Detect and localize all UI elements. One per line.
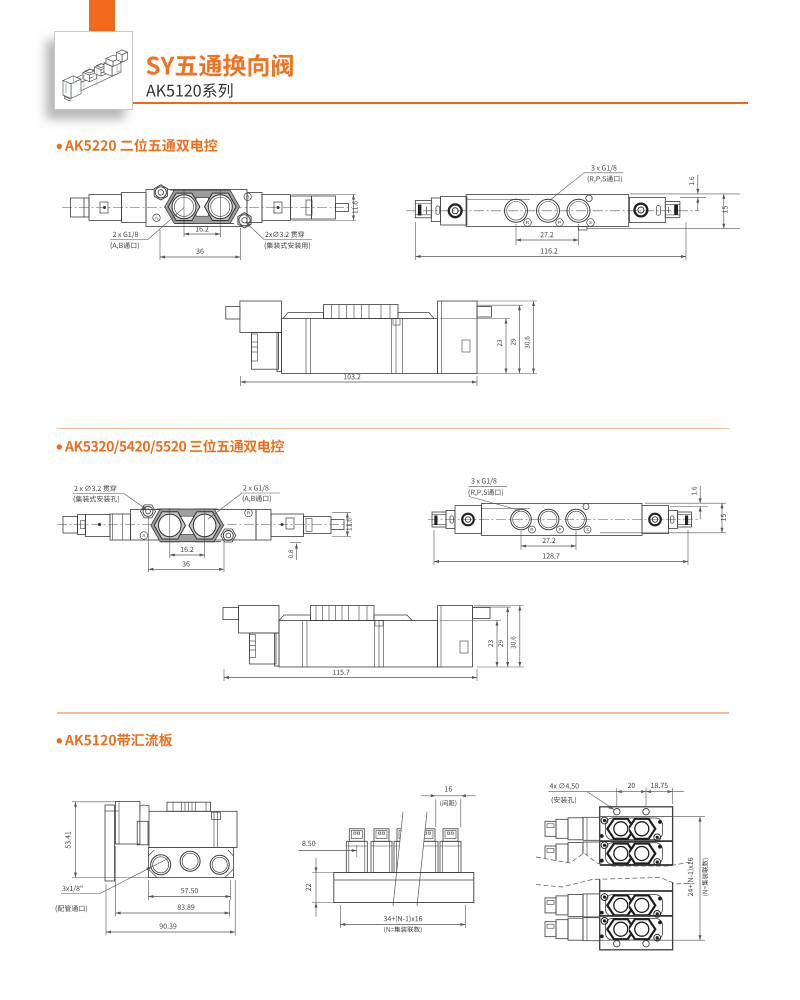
svg-text:S: S	[586, 527, 589, 532]
svg-text:R: R	[530, 527, 534, 532]
svg-text:R: R	[247, 511, 251, 517]
svg-text:P: P	[558, 527, 561, 532]
svg-text:A: A	[142, 533, 146, 539]
svg-text:A: A	[155, 215, 159, 220]
svg-text:P: P	[558, 220, 561, 226]
svg-text:R: R	[526, 220, 530, 226]
svg-text:S: S	[589, 220, 592, 226]
